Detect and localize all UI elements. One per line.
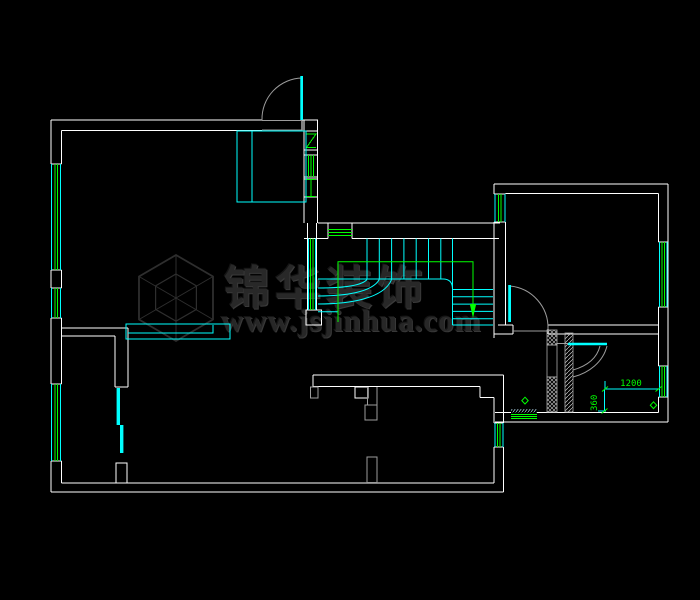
staircase: [318, 239, 493, 326]
threshold-hatch-strip: [511, 409, 537, 413]
wardrobe: [237, 131, 306, 202]
dimension-360-label: 360: [590, 395, 600, 411]
duct-shaft-hatch-bottom: [547, 377, 557, 412]
column-stub: [311, 387, 319, 398]
dimension-annotations: 1200 360: [590, 379, 662, 414]
sliding-door-panel-2: [120, 425, 123, 453]
doors: [117, 76, 607, 453]
shafts: [547, 330, 573, 412]
vent-and-slit-window-symbols: [307, 134, 317, 197]
sliding-door-panel-1: [117, 388, 120, 425]
window-frame-lines: [52, 164, 668, 461]
bathroom-door-swing-arcs: [573, 346, 607, 377]
partition-stub-box: [355, 387, 368, 398]
entry-door-leaf: [300, 76, 303, 120]
bedroom-door-swing-arc: [510, 286, 548, 329]
cabinet-counter-inner: [128, 325, 213, 333]
duct-shaft-middle: [547, 345, 557, 377]
bedroom-door-leaf: [508, 285, 511, 322]
small-room-pillar: [116, 463, 127, 483]
floor-drain-icon: [650, 402, 656, 409]
fixtures: [126, 131, 306, 339]
dimension-1200-label: 1200: [620, 379, 642, 389]
floor-plan-canvas: 锦华装饰 www.jsjinhua.com: [0, 0, 700, 600]
stair-wall-end-cap: [306, 310, 322, 325]
partition-pier-lower: [367, 457, 377, 483]
dimension-tick-marks: [602, 387, 662, 414]
stair-treads: [318, 239, 493, 326]
duct-shaft-hatch-top: [547, 330, 557, 345]
windows: [52, 134, 668, 461]
entry-door-swing-arc: [262, 78, 302, 120]
walls: [51, 120, 668, 492]
partition-pier-upper: [365, 405, 377, 420]
exterior-and-interior-wall-lines: [51, 120, 668, 492]
cabinet-counter: [126, 324, 230, 339]
floor-plan-svg: 1200 360: [0, 0, 700, 600]
window-pane-lines: [55, 164, 665, 461]
floor-drain-icon: [522, 397, 528, 404]
